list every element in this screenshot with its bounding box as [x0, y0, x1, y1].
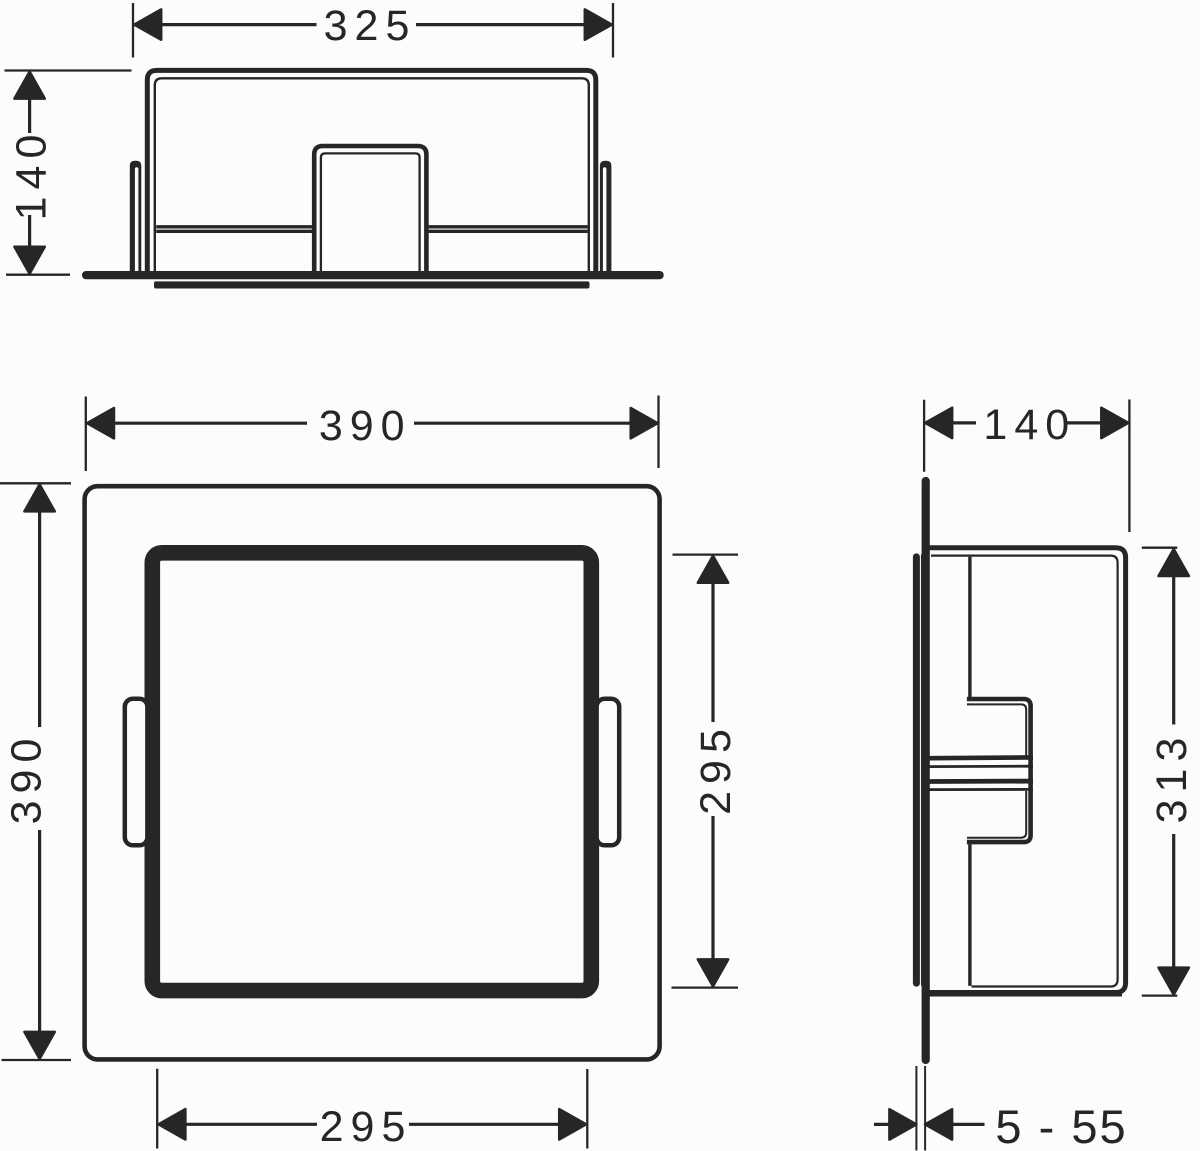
- svg-text:390: 390: [3, 732, 51, 825]
- svg-text:140: 140: [8, 128, 56, 221]
- svg-text:140: 140: [983, 401, 1076, 449]
- svg-text:313: 313: [1148, 731, 1196, 824]
- svg-text:325: 325: [324, 2, 417, 50]
- svg-text:5 - 55: 5 - 55: [995, 1100, 1127, 1151]
- svg-text:295: 295: [320, 1103, 413, 1151]
- svg-text:295: 295: [692, 722, 740, 815]
- svg-text:390: 390: [319, 402, 412, 450]
